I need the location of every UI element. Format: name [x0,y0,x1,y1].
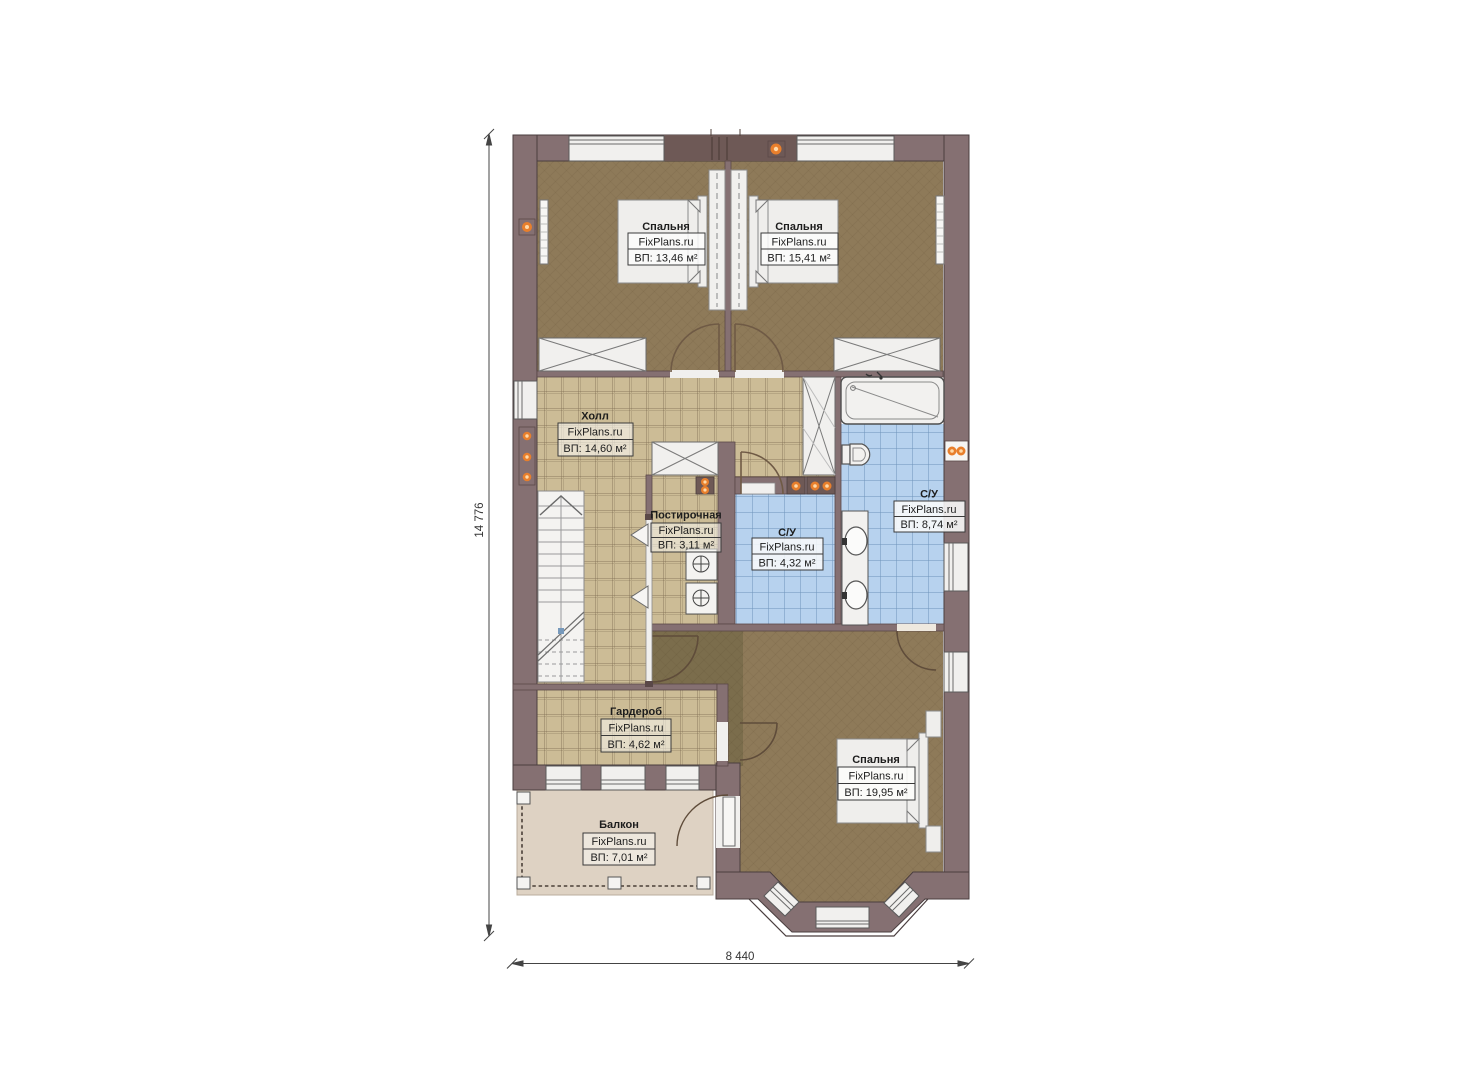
svg-text:FixPlans.ru: FixPlans.ru [608,723,663,735]
svg-text:Постирочная: Постирочная [650,510,721,522]
svg-text:ВП: 4,32 м²: ВП: 4,32 м² [758,558,815,570]
svg-text:ВП: 19,95 м²: ВП: 19,95 м² [844,787,908,799]
svg-text:8 440: 8 440 [726,951,755,963]
svg-text:Спальня: Спальня [775,221,823,233]
svg-text:ВП: 8,74 м²: ВП: 8,74 м² [900,519,957,531]
svg-text:ВП: 14,60 м²: ВП: 14,60 м² [563,443,627,455]
svg-text:ВП: 15,41 м²: ВП: 15,41 м² [767,253,831,265]
svg-text:Балкон: Балкон [599,819,639,831]
svg-text:FixPlans.ru: FixPlans.ru [759,542,814,554]
svg-text:FixPlans.ru: FixPlans.ru [658,525,713,537]
svg-text:С/У: С/У [920,489,938,501]
svg-text:Спальня: Спальня [852,754,900,766]
svg-text:FixPlans.ru: FixPlans.ru [567,427,622,439]
svg-text:FixPlans.ru: FixPlans.ru [771,237,826,249]
svg-text:Холл: Холл [581,411,609,423]
svg-text:Спальня: Спальня [642,221,690,233]
svg-text:ВП: 13,46 м²: ВП: 13,46 м² [634,253,698,265]
svg-text:FixPlans.ru: FixPlans.ru [591,836,646,848]
svg-text:Гардероб: Гардероб [610,706,662,718]
svg-text:FixPlans.ru: FixPlans.ru [901,504,956,516]
svg-text:14 776: 14 776 [474,502,486,537]
svg-text:ВП: 7,01 м²: ВП: 7,01 м² [590,852,647,864]
svg-text:ВП: 3,11 м²: ВП: 3,11 м² [658,540,715,552]
svg-text:ВП: 4,62 м²: ВП: 4,62 м² [607,739,664,751]
svg-text:FixPlans.ru: FixPlans.ru [848,771,903,783]
svg-text:FixPlans.ru: FixPlans.ru [638,237,693,249]
svg-text:С/У: С/У [778,527,796,539]
